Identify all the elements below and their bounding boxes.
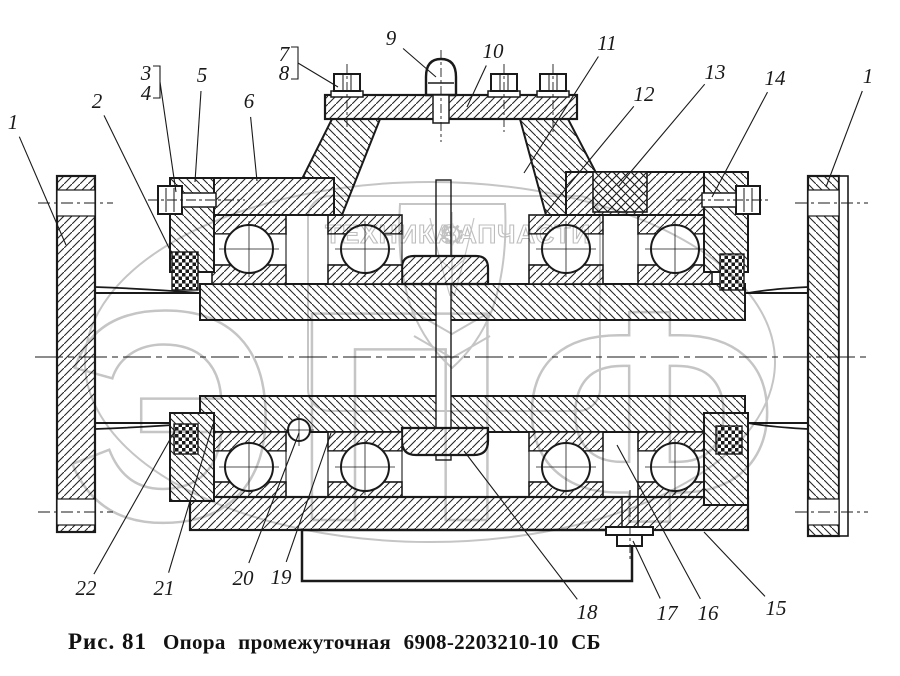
- callout-label-10: 10: [483, 39, 505, 63]
- callout-label-14: 14: [765, 66, 787, 90]
- cover-plate: [325, 95, 577, 119]
- callout-label-1: 1: [863, 64, 874, 88]
- figure-caption: Рис. 81 Опора промежуточная 6908-2203210…: [0, 629, 900, 659]
- callout-leader-2: [104, 115, 172, 254]
- callout-label-2: 2: [92, 89, 103, 113]
- breather-fitting: [426, 50, 456, 142]
- callout-leader-6: [251, 117, 257, 181]
- callout-label-16: 16: [698, 601, 720, 625]
- callout-bracket-b78: [291, 47, 298, 79]
- callout-label-5: 5: [197, 63, 208, 87]
- callout-label-21: 21: [154, 576, 175, 600]
- callout-label-1: 1: [8, 110, 19, 134]
- figure-page: ЭПФ ТЕХНИКА ЗАПЧАСТИ ⚙ 12345678910111213…: [0, 0, 900, 676]
- figure-title: Опора промежуточная 6908-2203210-10 СБ: [163, 630, 601, 655]
- callout-bracket-leader-b34: [160, 82, 176, 192]
- callout-label-12: 12: [634, 82, 656, 106]
- callout-bracket-leader-b78: [298, 63, 338, 87]
- callout-label-4: 4: [141, 81, 152, 105]
- callout-label-15: 15: [766, 596, 787, 620]
- watermark-letters: ЭПФ: [64, 248, 791, 584]
- callout-label-22: 22: [76, 576, 98, 600]
- callout-label-18: 18: [577, 600, 599, 624]
- figure-number: Рис. 81: [68, 629, 147, 655]
- callout-leader-5: [195, 91, 201, 182]
- callout-label-9: 9: [386, 26, 397, 50]
- technical-drawing: ЭПФ ТЕХНИКА ЗАПЧАСТИ ⚙ 12345678910111213…: [0, 0, 900, 676]
- callout-label-19: 19: [271, 565, 293, 589]
- callout-bracket-b34: [153, 66, 160, 98]
- callout-label-13: 13: [705, 60, 726, 84]
- callout-label-17: 17: [657, 601, 680, 625]
- watermark-text-left: ТЕХНИКА: [325, 219, 455, 249]
- callout-leader-1: [826, 91, 862, 187]
- callout-label-6: 6: [244, 89, 255, 113]
- callout-label-20: 20: [233, 566, 255, 590]
- callout-label-8: 8: [279, 61, 290, 85]
- gear-icon: ⚙: [439, 218, 466, 253]
- callout-label-11: 11: [597, 31, 616, 55]
